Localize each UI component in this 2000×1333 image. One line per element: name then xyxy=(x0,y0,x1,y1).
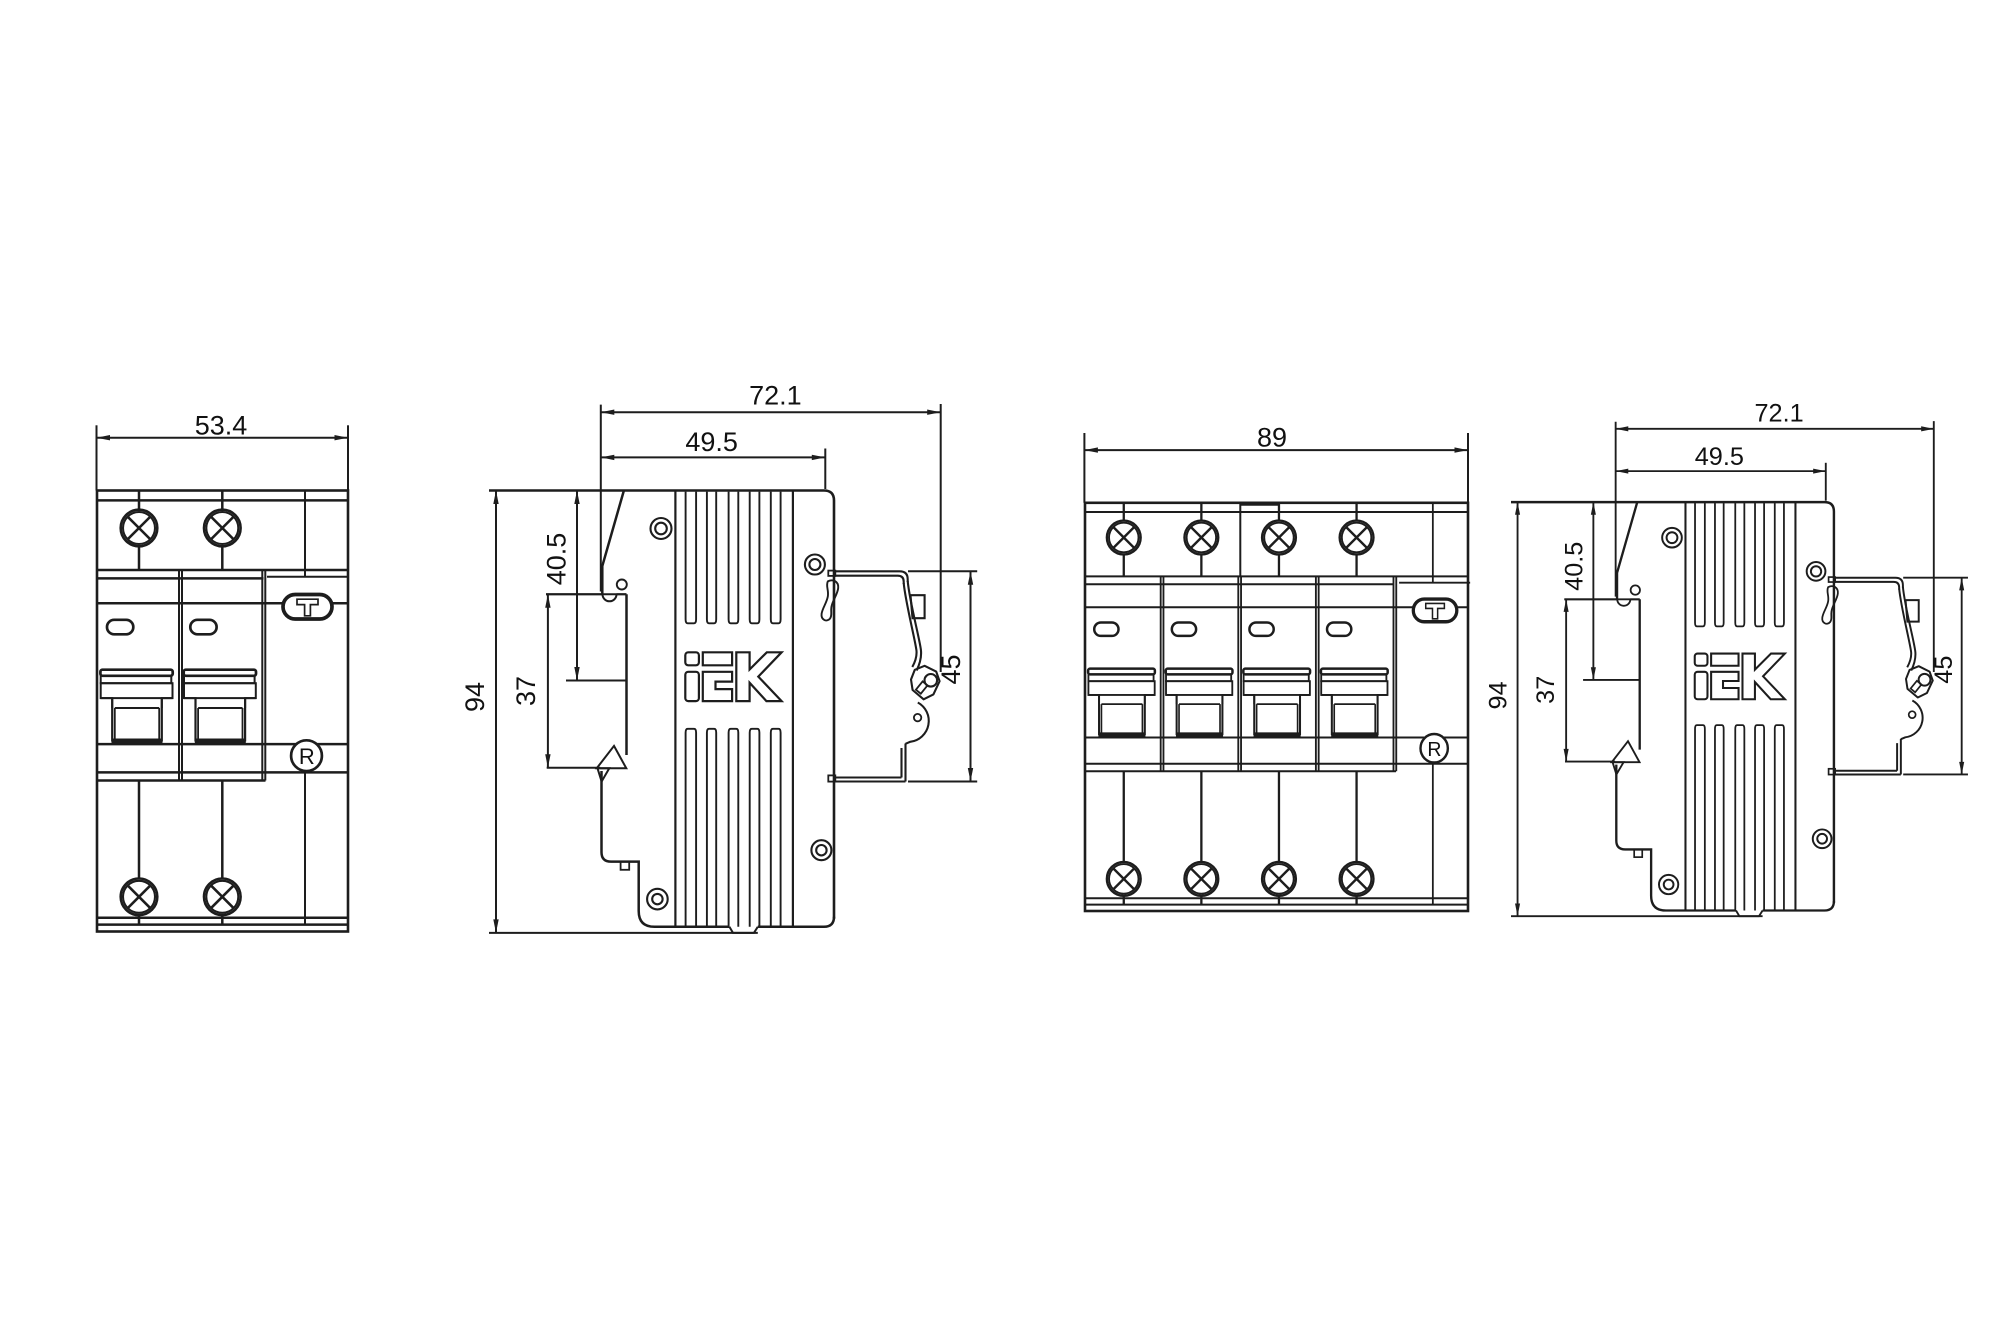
svg-text:53.4: 53.4 xyxy=(195,411,248,441)
svg-text:89: 89 xyxy=(1257,423,1287,453)
